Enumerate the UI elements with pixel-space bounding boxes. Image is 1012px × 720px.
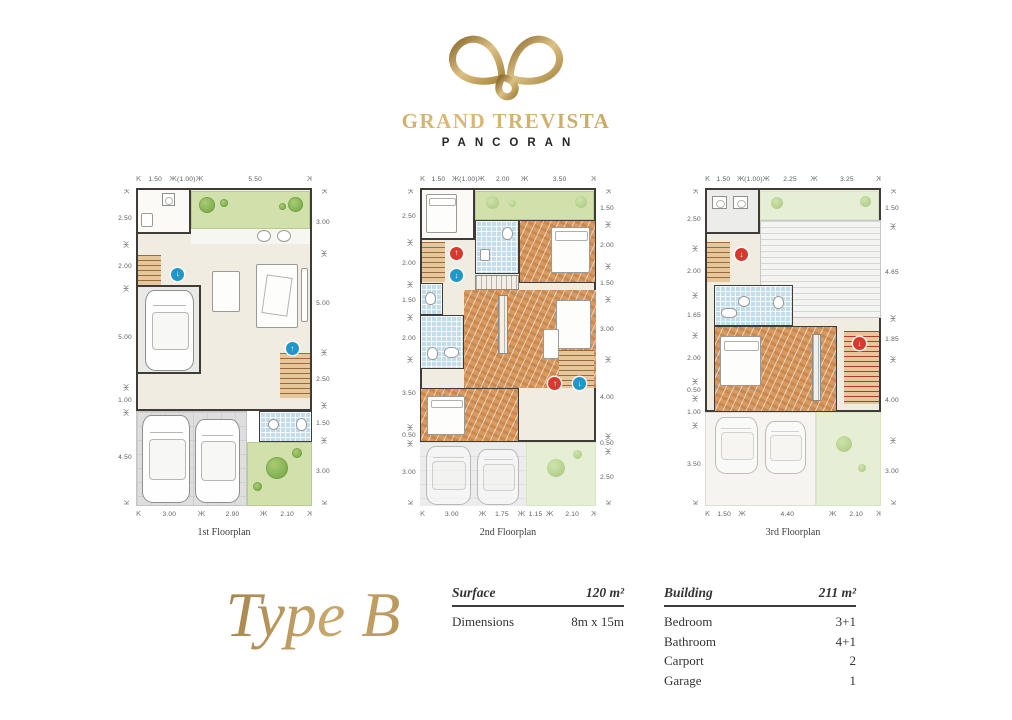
spec-value: 3+1 — [836, 614, 856, 630]
dimension-tick: К — [591, 511, 596, 518]
tree-icon — [266, 457, 288, 479]
stairs — [422, 242, 445, 282]
dimension-tick: Ж — [810, 176, 818, 183]
tree-icon — [199, 197, 215, 213]
dimension-label: 3.50 — [402, 390, 416, 397]
tree-icon — [486, 196, 499, 209]
dimension-label: 1.00 — [118, 397, 132, 404]
dimension-label: 2.00 — [600, 242, 614, 249]
stairs — [280, 353, 310, 398]
car-roof — [201, 441, 236, 481]
tree-icon — [575, 196, 587, 208]
dimension-tick: Ж — [319, 402, 326, 410]
tree-icon — [771, 197, 783, 209]
dimension-label: 2.25 — [783, 176, 797, 183]
brand-title: GRAND TREVISTA — [0, 109, 1012, 134]
dimension-tick: К — [319, 500, 326, 505]
dim-row-top: К1.50Ж(1.00)Ж5.50К — [136, 170, 312, 188]
dim-row-bottom: К3.00Ж1.75Ж1.15Ж2.10К — [420, 506, 596, 523]
building-label: Building — [664, 585, 713, 601]
dim-col-right: К1.50Ж4.65Ж1.85Ж4.00Ж3.00К — [881, 188, 903, 506]
bathroom-zone — [259, 411, 312, 443]
dimension-tick: Ж — [603, 263, 610, 271]
dimension-label: 5.00 — [316, 300, 330, 307]
dim-col-left: К2.50Ж2.00Ж1.50Ж2.00Ж3.50Ж0.50Ж3.00К — [398, 188, 420, 506]
sofa-set — [256, 264, 298, 328]
stair-up-marker-icon: ↑ — [286, 342, 299, 355]
dimension-label: 1.50 — [717, 176, 731, 183]
laundry-zone — [705, 188, 760, 234]
windshield-line — [433, 457, 463, 458]
dimension-tick: К — [888, 500, 895, 505]
spec-row: Bedroom3+1 — [664, 614, 856, 630]
garden-below-zone — [816, 412, 881, 506]
tree-icon — [573, 450, 582, 459]
sofa-set — [556, 300, 590, 349]
dimension-tick: Ж — [479, 511, 487, 518]
tree-icon — [509, 200, 516, 207]
bathroom-zone — [475, 220, 519, 274]
windshield-line — [771, 431, 799, 432]
dimension-label: 1.15 — [529, 511, 543, 518]
dimension-label: (1.00) — [744, 176, 762, 183]
dimension-tick: К — [319, 189, 326, 194]
dimension-label: 2.00 — [687, 268, 701, 275]
floorplan-2-canvas: ↑ ↓ ↑ ↓ — [420, 188, 596, 506]
dimension-label: 3.00 — [445, 511, 459, 518]
bathtub-icon — [444, 347, 459, 358]
stair-up-marker-icon: ↑ — [450, 247, 463, 260]
dimension-tick: Ж — [319, 349, 326, 357]
dimension-tick: Ж — [888, 222, 895, 230]
dimension-tick: Ж — [405, 355, 412, 363]
dimension-tick: Ж — [690, 422, 697, 430]
dimension-tick: Ж — [546, 511, 554, 518]
floorplan-3-canvas: ↓ ↓ — [705, 188, 881, 506]
bed — [720, 336, 761, 386]
dimension-tick: Ж — [888, 356, 895, 364]
dimensions-value: 8m x 15m — [571, 614, 624, 630]
dimension-tick: Ж — [690, 395, 697, 403]
dimension-label: 3.50 — [687, 461, 701, 468]
sink-icon — [738, 296, 750, 307]
pillow — [431, 400, 464, 409]
dimension-tick: Ж — [690, 291, 697, 299]
dimension-tick: Ж — [603, 296, 610, 304]
bathroom-zone — [714, 285, 793, 326]
dimension-label: 2.10 — [849, 511, 863, 518]
dimension-label: (1.00) — [177, 176, 195, 183]
dimension-tick: Ж — [690, 378, 697, 386]
type-title: Type B — [168, 578, 458, 652]
windshield-line — [721, 428, 751, 429]
dimension-tick: Ж — [829, 511, 837, 518]
tree-icon — [860, 196, 871, 207]
dimension-label: 1.85 — [885, 336, 899, 343]
dimension-label: 1.75 — [495, 511, 509, 518]
dimension-label: 2.00 — [687, 355, 701, 362]
vanity-zone — [191, 229, 310, 243]
dimension-tick: Ж — [603, 448, 610, 456]
dimension-tick: Ж — [169, 176, 177, 183]
header: GRAND TREVISTA PANCORAN — [0, 26, 1012, 149]
dimension-tick: К — [405, 500, 412, 505]
dimension-label: 2.50 — [118, 215, 132, 222]
tree-icon — [288, 197, 303, 212]
dimension-label: 1.50 — [885, 205, 899, 212]
carport-zone — [136, 411, 247, 506]
dimension-label: 2.50 — [402, 213, 416, 220]
garden-zone — [475, 191, 594, 220]
stair-down-marker-icon: ↓ — [171, 268, 184, 281]
bedroom-zone — [714, 326, 837, 412]
dimension-label: 0.50 — [600, 440, 614, 447]
building-value: 211 m² — [819, 585, 856, 601]
dimension-label: 1.65 — [687, 312, 701, 319]
bedroom-zone — [420, 388, 519, 442]
surface-value: 120 m² — [586, 585, 624, 601]
floorplan-1-canvas: ↓ ↑ — [136, 188, 312, 506]
dimension-tick: К — [405, 189, 412, 194]
dimension-tick: К — [876, 176, 881, 183]
dimension-label: 4.00 — [600, 394, 614, 401]
dimension-tick: Ж — [405, 314, 412, 322]
dimension-label: 3.25 — [840, 176, 854, 183]
bathroom-zone — [420, 283, 443, 315]
building-header: Building 211 m² — [664, 585, 856, 607]
wardrobe — [812, 334, 822, 401]
car-roof — [770, 435, 802, 461]
dimension-label: 4.40 — [781, 511, 795, 518]
car-roof — [149, 439, 186, 481]
car-roof — [483, 464, 515, 491]
spec-value: 4+1 — [836, 634, 856, 650]
floorplan-3-block: К1.50Ж(1.00)Ж2.25Ж3.25К К2.50Ж2.00Ж1.65Ж… — [683, 170, 903, 543]
dimension-tick: К — [121, 500, 128, 505]
garden-below-zone — [526, 442, 596, 506]
car-icon — [145, 290, 193, 370]
dimension-label: 2.00 — [118, 263, 132, 270]
dimension-tick: Ж — [477, 176, 485, 183]
sink-icon — [257, 230, 271, 242]
spec-label: Bathroom — [664, 634, 716, 650]
pillow — [555, 231, 588, 241]
building-column: Building 211 m² Bedroom3+1Bathroom4+1Car… — [664, 585, 856, 692]
dimension-label: 2.90 — [226, 511, 240, 518]
dim-row-top: К1.50Ж(1.00)Ж2.25Ж3.25К — [705, 170, 881, 188]
dim-col-right: К3.00Ж5.00Ж2.50Ж1.50Ж3.00К — [312, 188, 334, 506]
dimension-tick: Ж — [521, 176, 529, 183]
dimension-tick: Ж — [603, 221, 610, 229]
dimension-label: 3.00 — [402, 469, 416, 476]
dimension-label: 2.00 — [402, 335, 416, 342]
garage-zone — [136, 285, 201, 374]
surface-column: Surface 120 m² Dimensions 8m x 15m — [452, 585, 624, 692]
car-icon — [195, 419, 241, 503]
dimension-tick: Ж — [405, 238, 412, 246]
stair-down-marker-icon: ↓ — [450, 269, 463, 282]
dim-row-bottom: К3.00Ж2.90Ж2.10К — [136, 506, 312, 523]
floorplan-1-block: К1.50Ж(1.00)Ж5.50К К2.50Ж2.00Ж5.00Ж1.00Ж… — [114, 170, 334, 543]
tree-icon — [858, 464, 866, 472]
dimension-label: 2.00 — [402, 260, 416, 267]
tv-console — [301, 268, 308, 322]
dimension-label: 1.50 — [432, 176, 446, 183]
wardrobe — [498, 295, 507, 354]
tree-icon — [547, 459, 565, 477]
washing-machine-icon — [733, 196, 748, 209]
dimension-tick: Ж — [121, 409, 128, 417]
spec-row: Garage1 — [664, 673, 856, 689]
tree-icon — [253, 482, 262, 491]
rug — [261, 275, 292, 317]
dimension-tick: Ж — [260, 511, 268, 518]
spec-label: Garage — [664, 673, 702, 689]
dimension-tick: Ж — [888, 315, 895, 323]
dimension-tick: К — [121, 189, 128, 194]
spec-row: Bathroom4+1 — [664, 634, 856, 650]
dimension-tick: Ж — [690, 331, 697, 339]
dimension-label: (1.00) — [459, 176, 477, 183]
dimension-label: 3.00 — [316, 468, 330, 475]
toilet-icon — [296, 418, 307, 431]
dimension-tick: К — [603, 189, 610, 194]
car-icon — [765, 421, 806, 474]
car-roof — [721, 432, 754, 459]
dimension-tick: Ж — [603, 355, 610, 363]
bedroom-zone — [420, 188, 475, 240]
dimension-label: 2.50 — [687, 216, 701, 223]
garden-zone — [191, 191, 310, 229]
dimension-label: 0.50 — [687, 387, 701, 394]
car-icon — [477, 449, 519, 505]
dimension-tick: К — [690, 189, 697, 194]
windshield-line — [484, 459, 513, 460]
spec-label: Carport — [664, 653, 704, 669]
dimension-label: 1.50 — [402, 297, 416, 304]
dimension-tick: Ж — [121, 285, 128, 293]
toilet-icon — [773, 296, 784, 309]
dimension-tick: Ж — [319, 437, 326, 445]
tree-icon — [220, 199, 228, 207]
dimension-tick: Ж — [762, 176, 770, 183]
dimension-tick: К — [591, 176, 596, 183]
dimension-label: 1.50 — [600, 280, 614, 287]
stairs — [138, 255, 161, 287]
spec-table: Surface 120 m² Dimensions 8m x 15m Build… — [452, 585, 856, 692]
dimension-tick: Ж — [603, 432, 610, 440]
dimension-label: 2.50 — [316, 376, 330, 383]
bathtub-icon — [721, 308, 737, 318]
dimension-tick: Ж — [405, 424, 412, 432]
spec-label: Bedroom — [664, 614, 712, 630]
tree-icon — [279, 203, 286, 210]
dim-row-bottom: К1.50Ж4.40Ж2.10К — [705, 506, 881, 523]
dimension-label: 1.50 — [316, 420, 330, 427]
bathroom-zone — [420, 315, 464, 369]
sink-icon — [277, 230, 291, 242]
windshield-line — [153, 305, 186, 306]
windshield-line — [202, 435, 233, 436]
floorplan-2-block: К1.50Ж(1.00)Ж2.00Ж3.50К К2.50Ж2.00Ж1.50Ж… — [398, 170, 618, 543]
bedroom-zone — [519, 220, 596, 284]
sink-icon — [268, 419, 279, 430]
tree-icon — [836, 436, 852, 452]
car-icon — [715, 417, 758, 474]
dimension-tick: К — [888, 189, 895, 194]
dimension-tick: Ж — [405, 439, 412, 447]
dimension-label: 4.65 — [885, 269, 899, 276]
dining-table — [212, 271, 240, 312]
dimensions-row: Dimensions 8m x 15m — [452, 614, 624, 630]
dimension-tick: Ж — [198, 511, 206, 518]
dimension-label: 4.00 — [885, 397, 899, 404]
dimension-label: 2.10 — [280, 511, 294, 518]
dimension-label: 1.50 — [600, 205, 614, 212]
dimension-tick: Ж — [738, 511, 746, 518]
spec-value: 2 — [850, 653, 857, 669]
dimension-tick: Ж — [518, 511, 526, 518]
bed — [551, 227, 590, 273]
spec-row: Carport2 — [664, 653, 856, 669]
dimension-label: 3.00 — [316, 219, 330, 226]
dimension-label: 2.00 — [496, 176, 510, 183]
dimension-tick: Ж — [405, 280, 412, 288]
dimension-label: 1.50 — [717, 511, 731, 518]
pillow — [429, 198, 456, 207]
dimension-tick: Ж — [121, 241, 128, 249]
garden-zone — [760, 191, 879, 220]
dimension-label: 1.00 — [687, 409, 701, 416]
dimension-tick: Ж — [319, 250, 326, 258]
surface-header: Surface 120 m² — [452, 585, 624, 607]
dimension-label: 4.50 — [118, 454, 132, 461]
dimension-tick: К — [690, 500, 697, 505]
toilet-icon — [427, 347, 438, 360]
butterfly-leaves-icon — [432, 26, 580, 102]
stairs — [707, 242, 730, 282]
car-icon — [426, 446, 470, 505]
dimension-tick: Ж — [121, 384, 128, 392]
floorplan-3-caption: 3rd Floorplan — [683, 523, 903, 543]
dimension-label: 3.00 — [600, 326, 614, 333]
windshield-line — [150, 432, 183, 433]
brand-subtitle: PANCORAN — [0, 137, 1012, 149]
armchair — [543, 329, 559, 359]
washing-machine-icon — [712, 196, 727, 209]
car-roof — [152, 312, 189, 350]
dim-col-right: К1.50Ж2.00Ж1.50Ж3.00Ж4.00Ж0.50Ж2.50К — [596, 188, 618, 506]
dimensions-label: Dimensions — [452, 614, 514, 630]
dimension-label: 5.00 — [118, 334, 132, 341]
dimension-label: 3.50 — [553, 176, 567, 183]
dimension-label: 3.00 — [162, 511, 176, 518]
dimension-tick: К — [876, 511, 881, 518]
dimension-tick: К — [307, 511, 312, 518]
dimension-tick: К — [307, 176, 312, 183]
bed — [426, 194, 457, 233]
tree-icon — [292, 448, 302, 458]
kitchen-sink-icon — [141, 213, 153, 227]
car-roof — [432, 461, 466, 489]
spec-value: 1 — [850, 673, 857, 689]
floorplan-2-caption: 2nd Floorplan — [398, 523, 618, 543]
carport-below-zone — [420, 442, 526, 506]
dimension-tick: Ж — [196, 176, 204, 183]
dim-col-left: К2.50Ж2.00Ж5.00Ж1.00Ж4.50К — [114, 188, 136, 506]
dim-row-top: К1.50Ж(1.00)Ж2.00Ж3.50К — [420, 170, 596, 188]
toilet-icon — [502, 227, 513, 240]
toilet-icon — [425, 292, 436, 305]
surface-label: Surface — [452, 585, 496, 601]
dimension-label: 0.50 — [402, 432, 416, 439]
floorplan-1-caption: 1st Floorplan — [114, 523, 334, 543]
dimension-tick: Ж — [888, 437, 895, 445]
wardrobe — [475, 275, 519, 289]
garden-zone — [247, 442, 312, 506]
sink-icon — [480, 249, 490, 261]
bed — [427, 396, 466, 436]
pillow — [724, 341, 759, 352]
dimension-tick: Ж — [690, 245, 697, 253]
carport-roof-below-zone — [705, 412, 816, 506]
kitchen-zone — [136, 188, 191, 234]
car-icon — [142, 415, 190, 503]
dimension-label: 5.50 — [248, 176, 262, 183]
dimension-label: 3.00 — [885, 468, 899, 475]
stove-icon — [162, 193, 175, 206]
dimension-label: 2.10 — [565, 511, 579, 518]
building-rows: Bedroom3+1Bathroom4+1Carport2Garage1 — [664, 614, 856, 692]
dimension-label: 2.50 — [600, 474, 614, 481]
dimension-tick: К — [603, 500, 610, 505]
dim-col-left: К2.50Ж2.00Ж1.65Ж2.00Ж0.50Ж1.00Ж3.50К — [683, 188, 705, 506]
dimension-label: 1.50 — [148, 176, 162, 183]
